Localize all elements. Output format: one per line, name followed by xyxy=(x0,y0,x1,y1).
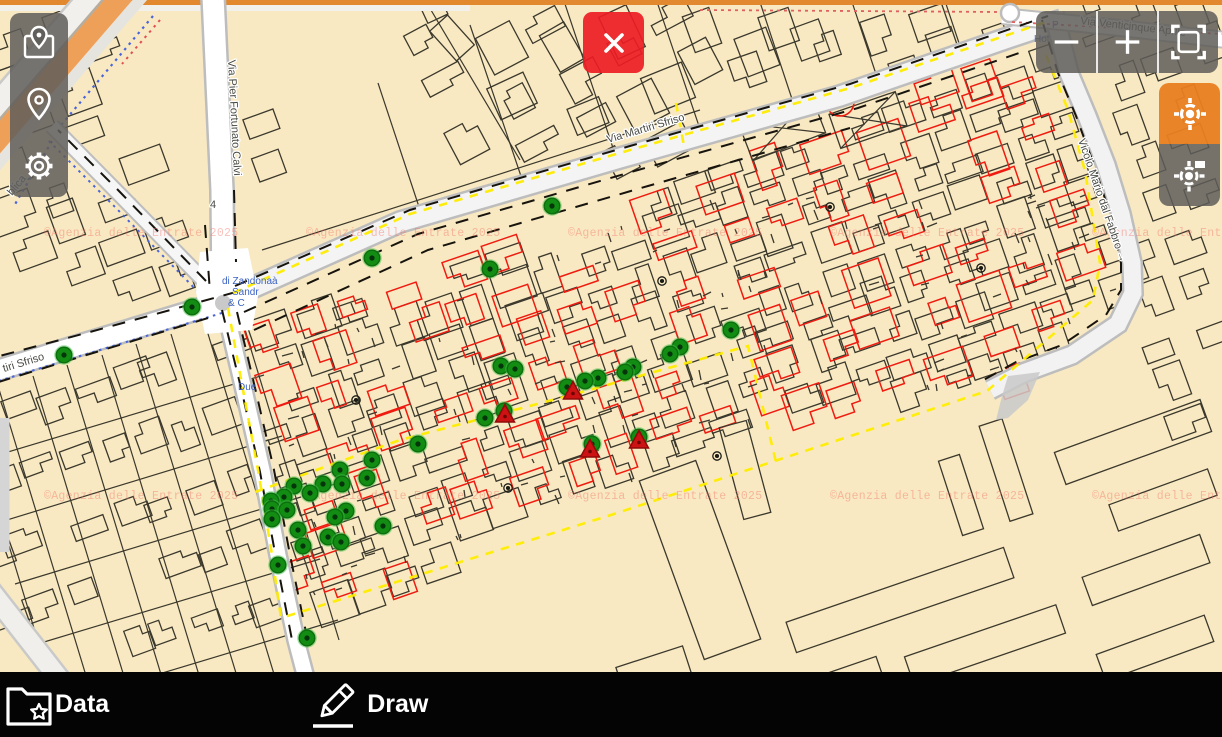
svg-text:Due: Due xyxy=(238,382,257,393)
svg-text:& C: & C xyxy=(228,298,245,309)
svg-text:©Agenzia delle Entrate 2025: ©Agenzia delle Entrate 2025 xyxy=(830,490,1024,503)
svg-text:©Agenzia delle Entrate 2025: ©Agenzia delle Entrate 2025 xyxy=(568,227,762,240)
svg-text:Sandr: Sandr xyxy=(232,287,259,298)
svg-text:©Agenzia delle Entrate 2025: ©Agenzia delle Entrate 2025 xyxy=(44,227,238,240)
svg-text:di Zandonaà: di Zandonaà xyxy=(222,276,278,287)
svg-text:©Agenzia delle Entrate 2025: ©Agenzia delle Entrate 2025 xyxy=(306,227,500,240)
svg-text:©Agenzia delle Entrate 2025: ©Agenzia delle Entrate 2025 xyxy=(568,490,762,503)
svg-text:©Agenzia delle Entrate 2025: ©Agenzia delle Entrate 2025 xyxy=(44,490,238,503)
svg-text:©Agenzia delle Entrate 2025: ©Agenzia delle Entrate 2025 xyxy=(1092,490,1222,503)
svg-text:©Agenzia delle Entrate 2025: ©Agenzia delle Entrate 2025 xyxy=(306,490,500,503)
svg-text:4: 4 xyxy=(210,199,216,211)
svg-text:©Agenzia delle Entrate 2025: ©Agenzia delle Entrate 2025 xyxy=(830,227,1024,240)
